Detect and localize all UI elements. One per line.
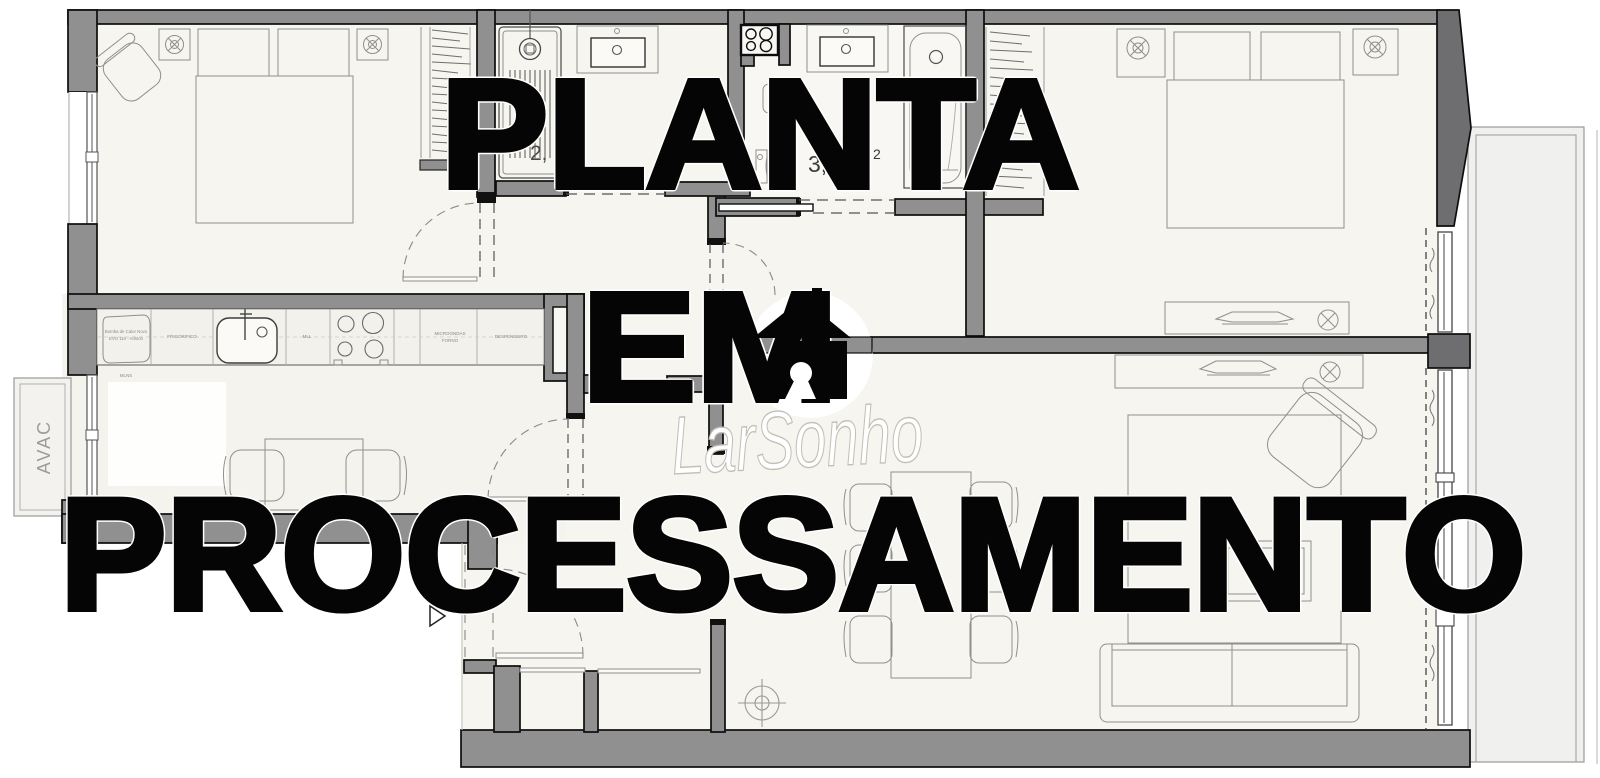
svg-text:MLL: MLL bbox=[303, 334, 312, 339]
svg-text:MLNS: MLNS bbox=[120, 373, 133, 378]
svg-text:Bomba de Calor Novo: Bomba de Calor Novo bbox=[105, 329, 148, 334]
svg-text:PLANTA: PLANTA bbox=[441, 48, 1079, 220]
svg-text:DESPENSEIRO: DESPENSEIRO bbox=[495, 334, 528, 339]
svg-text:FORNO: FORNO bbox=[442, 338, 459, 343]
svg-text:MICROONDAS: MICROONDAS bbox=[434, 331, 465, 336]
svg-text:EVO 110 - Ariston: EVO 110 - Ariston bbox=[109, 336, 144, 341]
svg-text:LarSonho: LarSonho bbox=[669, 388, 925, 492]
svg-text:FRIGORIFICO: FRIGORIFICO bbox=[167, 334, 197, 339]
svg-text:AVAC: AVAC bbox=[34, 420, 54, 474]
svg-text:PROCESSAMENTO: PROCESSAMENTO bbox=[60, 465, 1526, 643]
